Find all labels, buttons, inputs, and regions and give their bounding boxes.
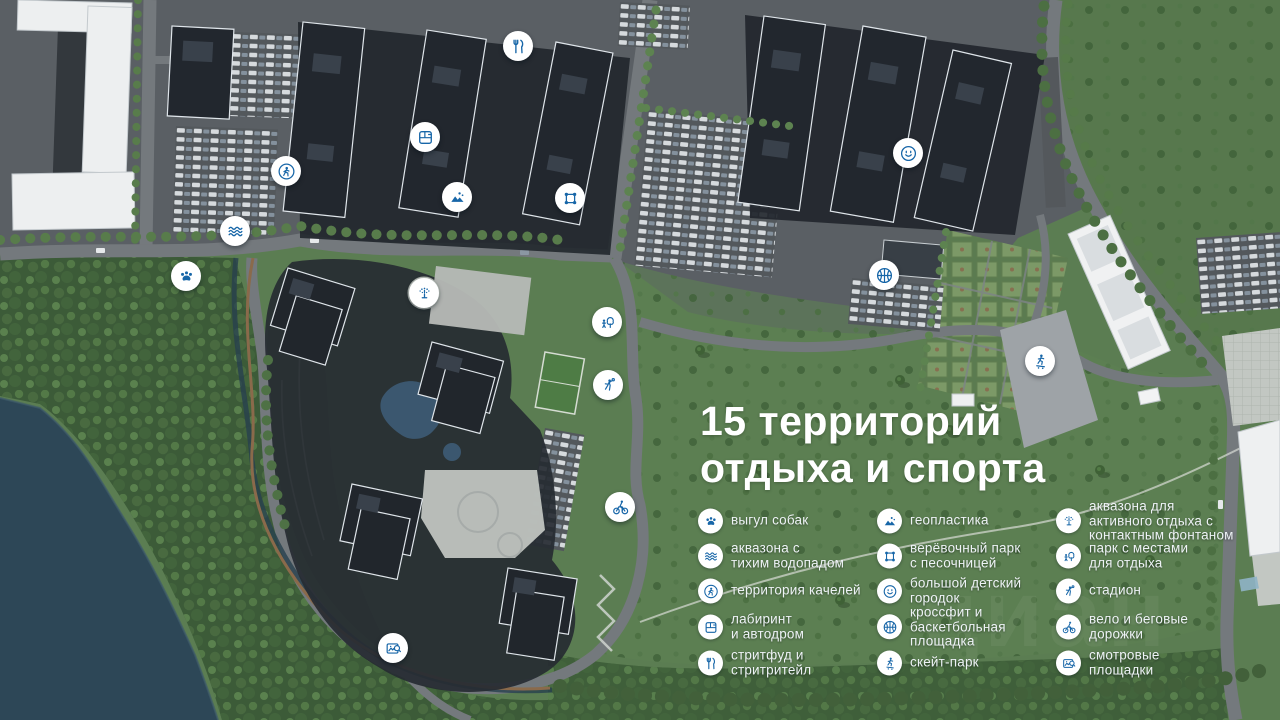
page-title: 15 территорий отдыха и спорта: [700, 398, 1046, 492]
legend-label: смотровыеплощадки: [1089, 649, 1160, 678]
map-marker-fountain[interactable]: [409, 278, 439, 308]
paw-icon: [177, 267, 196, 286]
map-marker-basketball[interactable]: [869, 260, 899, 290]
map-marker-maze[interactable]: [410, 122, 440, 152]
map-marker-streetfood[interactable]: [503, 31, 533, 61]
legend-item-geoplastics: геопластика: [877, 509, 989, 534]
legend-label: аквазона стихим водопадом: [731, 542, 844, 571]
map-marker-bike[interactable]: [605, 492, 635, 522]
legend-item-maze: лабиринти автодром: [698, 613, 804, 642]
legend: выгул собакаквазона стихим водопадомтерр…: [698, 505, 1273, 680]
legend-item-viewpoint: смотровыеплощадки: [1056, 649, 1160, 678]
title-line-2: отдыха и спорта: [700, 445, 1046, 492]
map-marker-stadium[interactable]: [593, 370, 623, 400]
legend-label: лабиринти автодром: [731, 613, 804, 642]
legend-item-basketball: кроссфит ибаскетбольнаяплощадка: [877, 605, 1006, 649]
map-marker-geoplastics[interactable]: [442, 182, 472, 212]
masterplan-map: 15 территорий отдыха и спорта выгул соба…: [0, 0, 1280, 720]
geoplastics-icon: [877, 509, 902, 534]
legend-label: территория качелей: [731, 584, 861, 599]
map-marker-walking-person[interactable]: [271, 156, 301, 186]
map-marker-rope-park[interactable]: [555, 183, 585, 213]
skatepark-icon: [877, 651, 902, 676]
legend-item-waves: аквазона стихим водопадом: [698, 542, 844, 571]
map-marker-waves[interactable]: [220, 216, 250, 246]
map-marker-viewpoint[interactable]: [378, 633, 408, 663]
fountain-icon: [415, 284, 434, 303]
legend-label: скейт-парк: [910, 656, 979, 671]
legend-item-streetfood: стритфуд истритритейл: [698, 649, 811, 678]
stadium-icon: [1056, 579, 1081, 604]
map-marker-park[interactable]: [592, 307, 622, 337]
smiley-icon: [877, 579, 902, 604]
legend-item-smiley: большой детскийгородок: [877, 577, 1021, 606]
legend-label: стадион: [1089, 584, 1141, 599]
legend-label: верёвочный паркс песочницей: [910, 542, 1021, 571]
streetfood-icon: [509, 37, 528, 56]
legend-item-park: парк с местамидля отдыха: [1056, 542, 1188, 571]
walking-person-icon: [277, 162, 296, 181]
viewpoint-icon: [384, 639, 403, 658]
fountain-icon: [1056, 509, 1081, 534]
legend-item-rope-park: верёвочный паркс песочницей: [877, 542, 1021, 571]
legend-item-fountain: аквазона дляактивного отдыха сконтактным…: [1056, 499, 1234, 543]
map-marker-smiley[interactable]: [893, 138, 923, 168]
legend-label: большой детскийгородок: [910, 577, 1021, 606]
walking-person-icon: [698, 579, 723, 604]
legend-item-paw: выгул собак: [698, 509, 808, 534]
map-marker-skatepark[interactable]: [1025, 346, 1055, 376]
stadium-icon: [599, 376, 618, 395]
title-line-1: 15 территорий: [700, 398, 1046, 445]
park-icon: [1056, 544, 1081, 569]
legend-label: аквазона дляактивного отдыха сконтактным…: [1089, 499, 1234, 543]
legend-label: вело и беговыедорожки: [1089, 613, 1188, 642]
map-marker-paw[interactable]: [171, 261, 201, 291]
legend-label: парк с местамидля отдыха: [1089, 542, 1188, 571]
geoplastics-icon: [448, 188, 467, 207]
waves-icon: [226, 222, 245, 241]
legend-label: кроссфит ибаскетбольнаяплощадка: [910, 605, 1006, 649]
legend-label: стритфуд истритритейл: [731, 649, 811, 678]
legend-item-bike: вело и беговыедорожки: [1056, 613, 1188, 642]
legend-label: геопластика: [910, 514, 989, 529]
waves-icon: [698, 544, 723, 569]
legend-label: выгул собак: [731, 514, 808, 529]
smiley-icon: [899, 144, 918, 163]
maze-icon: [698, 615, 723, 640]
basketball-icon: [877, 615, 902, 640]
viewpoint-icon: [1056, 651, 1081, 676]
skatepark-icon: [1031, 352, 1050, 371]
rope-park-icon: [561, 189, 580, 208]
maze-icon: [416, 128, 435, 147]
legend-item-stadium: стадион: [1056, 579, 1141, 604]
rope-park-icon: [877, 544, 902, 569]
park-icon: [598, 313, 617, 332]
legend-item-skatepark: скейт-парк: [877, 651, 979, 676]
basketball-icon: [875, 266, 894, 285]
bike-icon: [1056, 615, 1081, 640]
bike-icon: [611, 498, 630, 517]
legend-item-walking-person: территория качелей: [698, 579, 861, 604]
streetfood-icon: [698, 651, 723, 676]
paw-icon: [698, 509, 723, 534]
